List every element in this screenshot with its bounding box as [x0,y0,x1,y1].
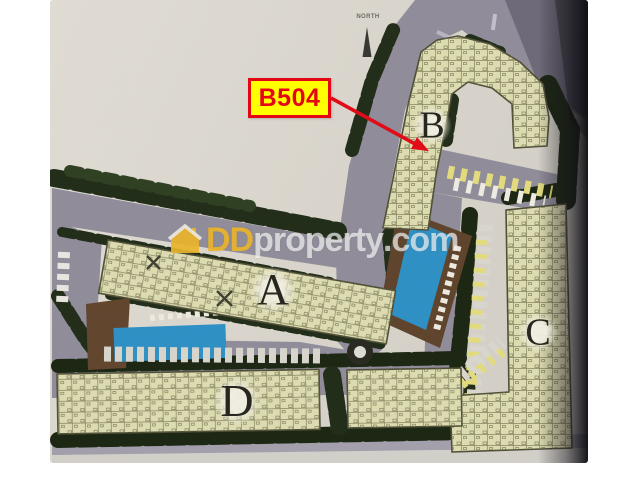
house-icon [168,224,202,256]
watermark-brand-suffix: .com [383,223,458,257]
north-label: NORTH [351,14,385,20]
building-d-label: D [213,377,260,425]
building-a-label: A [250,267,296,313]
page: A B C D NORTH B504 DD property .com [0,0,640,480]
watermark: DD property .com [168,219,458,261]
watermark-brand-middle: property [253,223,383,257]
unit-callout-text: B504 [259,84,321,113]
building-b-label: B [412,105,451,145]
unit-callout-b504: B504 [248,78,331,118]
building-c-label: C [518,312,557,352]
watermark-brand-prefix: DD [206,223,253,257]
